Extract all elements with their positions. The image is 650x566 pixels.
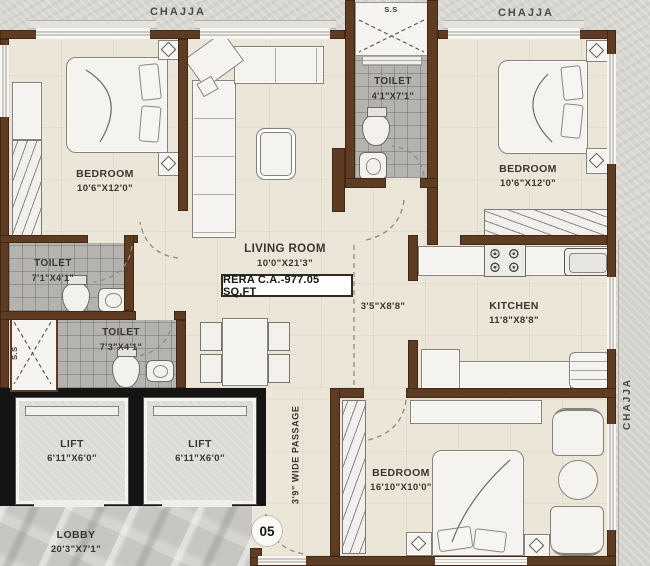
stove-burners [484,244,526,277]
lift-door [153,406,247,416]
bedroom3-nightstand [524,534,550,558]
chajja-label-top-right: CHAJJA [478,7,574,19]
bedroom1-pillow [138,105,161,143]
bedroom1-label: BEDROOM10'6"X12'0" [52,165,158,197]
chajja-label-top-left: CHAJJA [130,6,226,18]
window [607,424,616,530]
wall [0,235,88,243]
window [200,28,330,39]
window [607,277,616,349]
wall [124,235,134,311]
bedroom2-pillow [560,65,583,101]
toilet-top-basin [359,152,387,180]
lift-door [25,406,119,416]
kitchen-sink [564,248,610,276]
toilet-mid-label: TOILET7'1"X4'1" [12,256,94,286]
wall [420,178,438,188]
wall [345,178,386,188]
wall [178,39,188,211]
lift2-dims: 6'11"X6'0" [175,452,225,466]
wall [406,388,616,398]
window [607,54,616,164]
ss-label-left: S.S [10,338,21,368]
unit-number-badge: 05 [252,516,282,546]
kitchen-label: KITCHEN11'8"X8'8" [462,297,566,329]
toilet-top-label: TOILET4'1"X7'1" [355,74,431,104]
accent-chair-top [552,408,604,456]
bedroom3-pillow [437,526,474,553]
refrigerator [421,349,460,389]
wall [427,0,438,245]
window [36,28,150,39]
bedroom2-side-table [586,148,608,174]
coffee-table [256,128,296,180]
round-table [558,460,598,500]
bedroom2-wardrobe [484,209,608,236]
toilet-low-label: TOILET7'3"X4'1" [80,325,162,355]
wide-passage-label: 3'9" WIDE PASSAGE [284,394,308,516]
bedroom3-pillow [473,528,507,553]
dining-chair [200,322,222,351]
wall [345,0,355,188]
sofa-vertical-arm [192,80,236,238]
bedroom2-side-table [586,40,608,62]
bedroom2-label: BEDROOM10'6"X12'0" [475,160,581,192]
bedroom3-sideboard [410,400,542,424]
wall [330,388,340,556]
lift2-threshold [162,500,232,507]
lobby-label: LOBBY20'3"X7'1" [28,527,124,557]
wall [460,235,607,245]
lift1-threshold [34,500,104,507]
sofa-horizontal-arm [234,46,324,84]
lift-2: LIFT6'11"X6'0" [144,398,256,504]
bedroom3-nightstand [406,532,432,556]
toilet-low-basin [146,360,174,382]
wall [332,148,345,212]
window [0,45,9,117]
washing-machine [569,352,610,389]
bedroom3-label: BEDROOM16'10"X10'0" [347,464,455,496]
shaft-vent [362,55,422,66]
lift1-dims: 6'11"X6'0" [47,452,97,466]
dining-table [222,318,268,386]
bedroom1-side-table [158,152,180,176]
ss-label-top: S.S [370,5,412,14]
dining-chair [268,322,290,351]
window [435,557,527,565]
bedroom1-dresser [12,82,42,140]
lift2-label: LIFT [188,437,212,452]
wall [176,320,186,388]
wall [174,311,186,320]
bedroom1-wardrobe [12,140,42,238]
window [448,28,580,39]
floor-plan: LIFT6'11"X6'0" LIFT6'11"X6'0" [0,0,650,566]
chajja-label-right: CHAJJA [622,366,646,442]
bedroom2-pillow [560,103,583,139]
entry-threshold [258,556,306,565]
bedroom1-side-table [158,40,180,60]
dining-chair [200,354,222,383]
kitchen-counter-bottom [459,361,571,389]
lift-1: LIFT6'11"X6'0" [16,398,128,504]
living-room-label: LIVING ROOM10'0"X21'3" [212,240,358,272]
lift1-label: LIFT [60,437,84,452]
wall [0,311,136,320]
dining-chair [268,354,290,383]
wall [408,235,418,281]
accent-chair-bottom [550,506,604,556]
bedroom1-pillow [138,63,162,101]
rera-area-badge: RERA C.A.-977.05 SQ.FT [221,274,353,297]
passage-dims-label: 3'5"X8'8" [352,300,414,314]
